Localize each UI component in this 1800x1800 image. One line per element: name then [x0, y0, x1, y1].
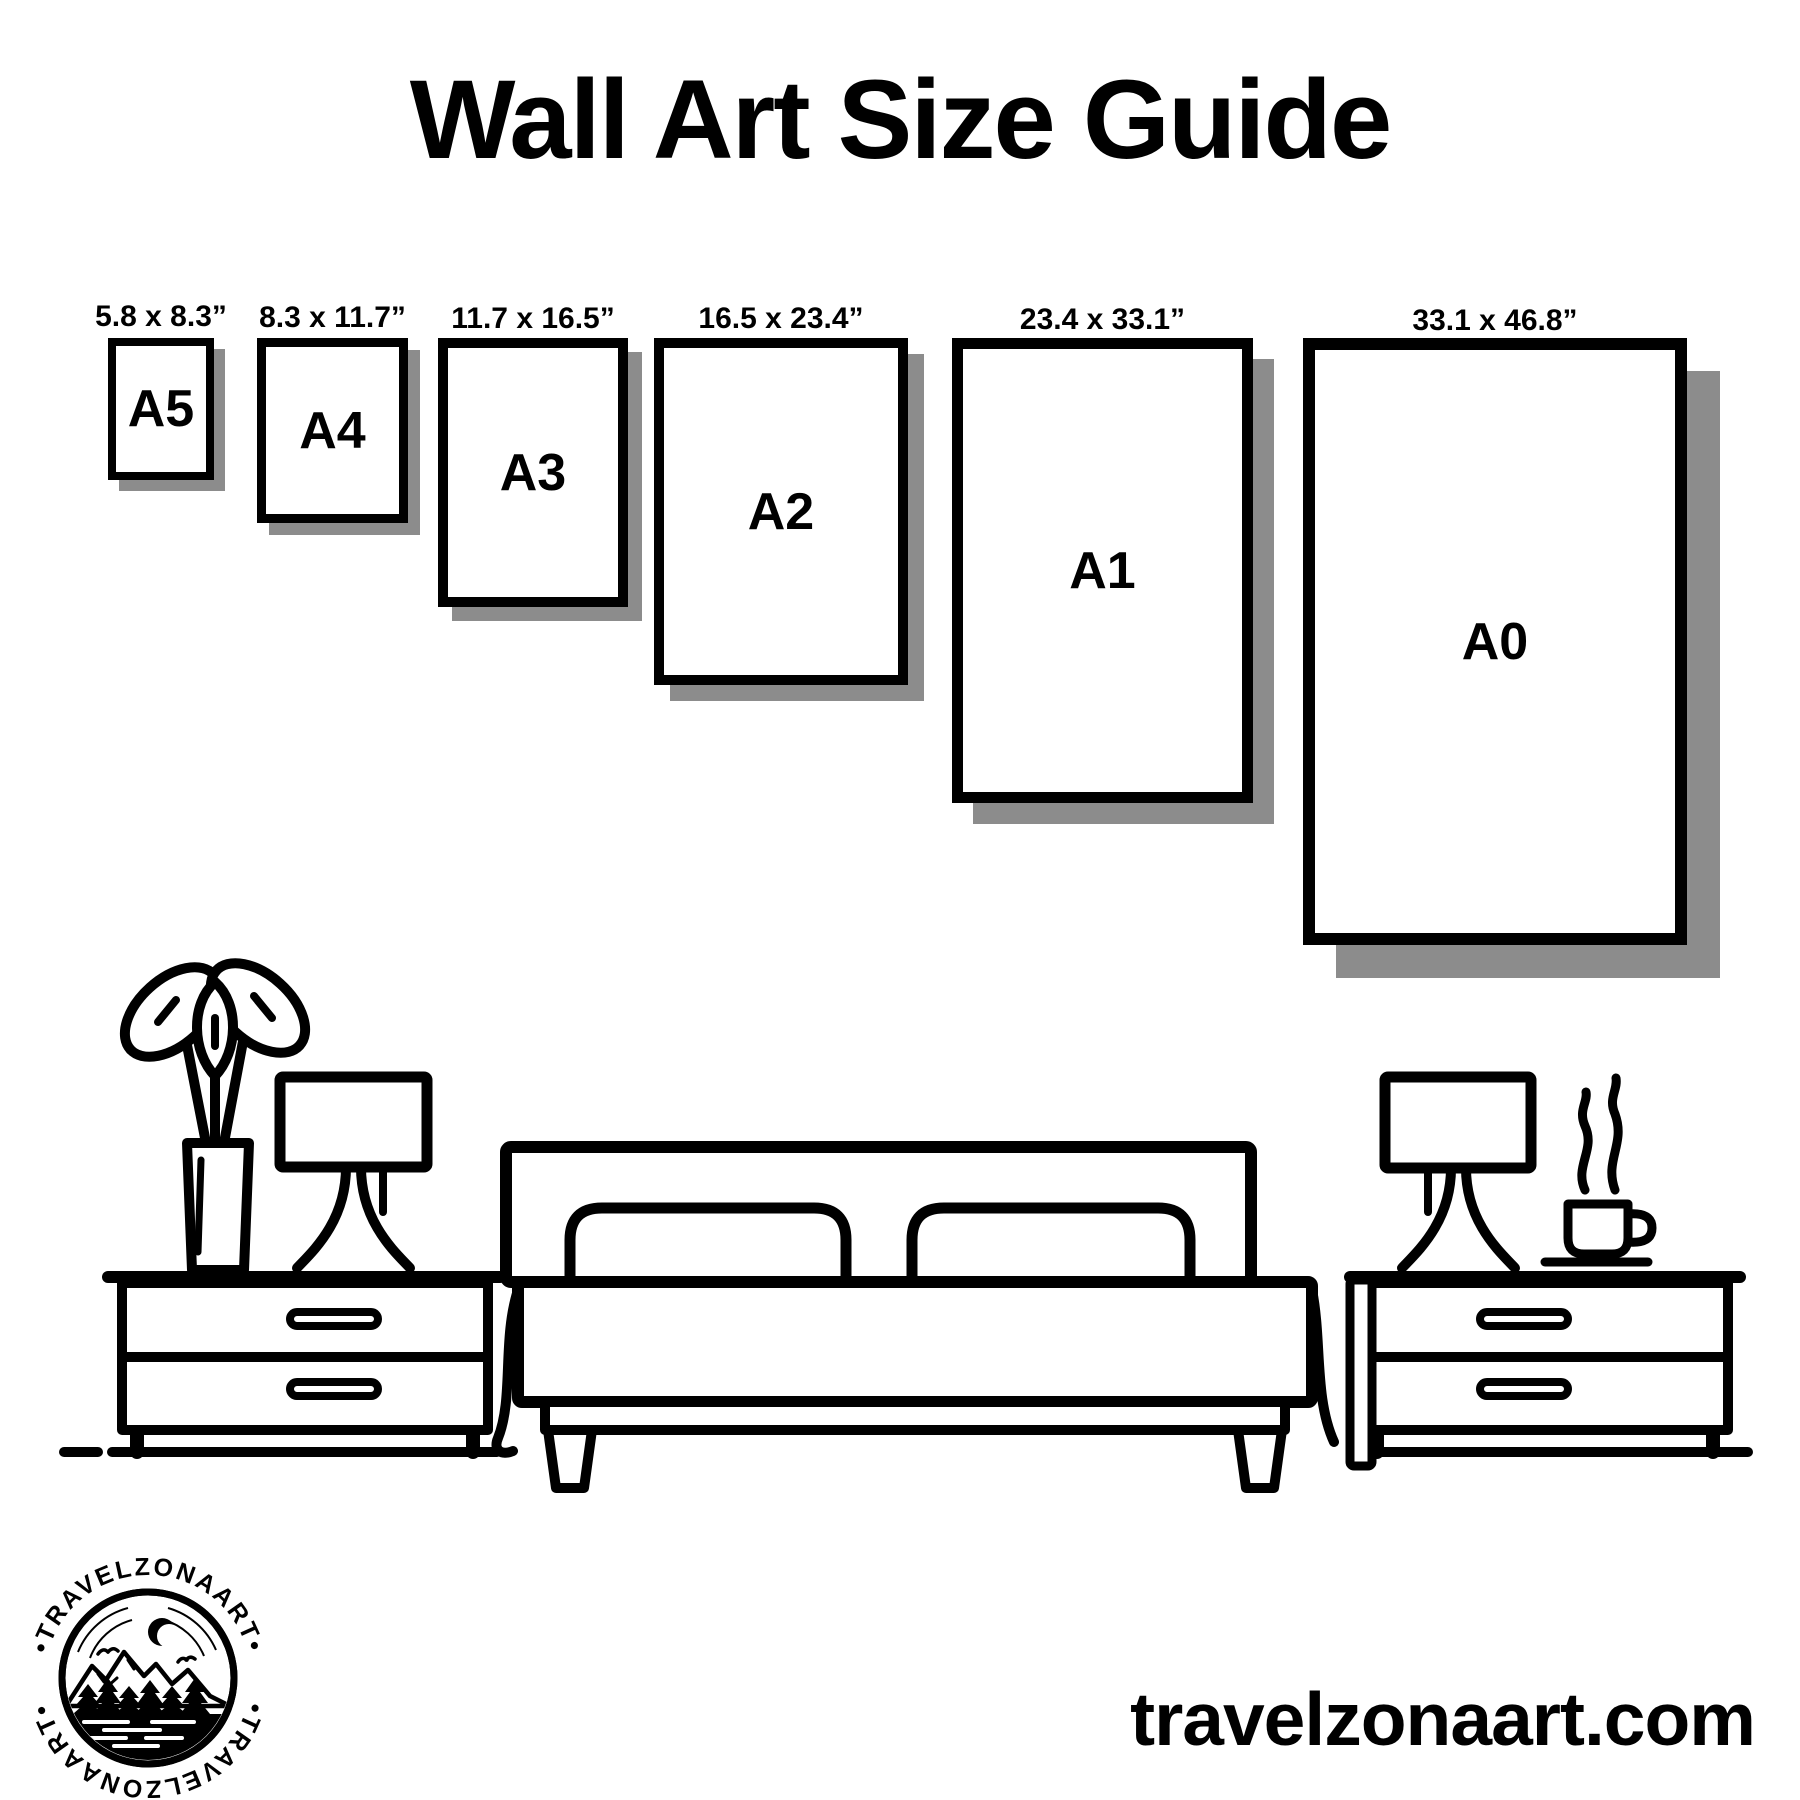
size-name-a5: A5 — [128, 379, 194, 439]
size-name-a4: A4 — [299, 401, 365, 461]
dimension-label-a3: 11.7 x 16.5” — [451, 302, 614, 336]
page-title: Wall Art Size Guide — [0, 64, 1800, 176]
wall-art-size-guide-poster: Wall Art Size Guide 5.8 x 8.3” A5 8.3 x … — [0, 0, 1800, 1800]
bed-icon — [496, 1147, 1372, 1488]
dimension-label-a5: 5.8 x 8.3” — [95, 300, 227, 334]
table-lamp-left-icon — [280, 1077, 427, 1268]
steam-icon — [1582, 1078, 1618, 1190]
size-frame-a5: 5.8 x 8.3” A5 — [108, 338, 214, 480]
size-frame-a3: 11.7 x 16.5” A3 — [438, 338, 628, 607]
dimension-label-a2: 16.5 x 23.4” — [698, 302, 863, 336]
size-frame-a4: 8.3 x 11.7” A4 — [257, 338, 408, 523]
coffee-cup-icon — [1545, 1078, 1652, 1262]
size-frame-a2: 16.5 x 23.4” A2 — [654, 338, 908, 685]
dimension-label-a0: 33.1 x 46.8” — [1412, 304, 1577, 338]
size-name-a2: A2 — [748, 482, 814, 542]
size-name-a1: A1 — [1069, 541, 1135, 601]
brand-logo-badge: •TRAVELZONAART• •TRAVELZONAART• — [28, 1558, 268, 1798]
dimension-label-a1: 23.4 x 33.1” — [1020, 303, 1185, 337]
bedroom-illustration — [0, 840, 1800, 1520]
dimension-label-a4: 8.3 x 11.7” — [259, 301, 406, 335]
size-frame-a1: 23.4 x 33.1” A1 — [952, 338, 1253, 803]
nightstand-right-icon — [1350, 1277, 1740, 1452]
pillow-right — [912, 1208, 1190, 1282]
size-name-a3: A3 — [500, 443, 566, 503]
nightstand-left-icon — [108, 1277, 500, 1452]
website-url: travelzonaart.com — [1130, 1682, 1755, 1757]
table-lamp-right-icon — [1385, 1077, 1531, 1268]
size-name-a0: A0 — [1462, 612, 1528, 672]
pillow-left — [570, 1208, 846, 1282]
